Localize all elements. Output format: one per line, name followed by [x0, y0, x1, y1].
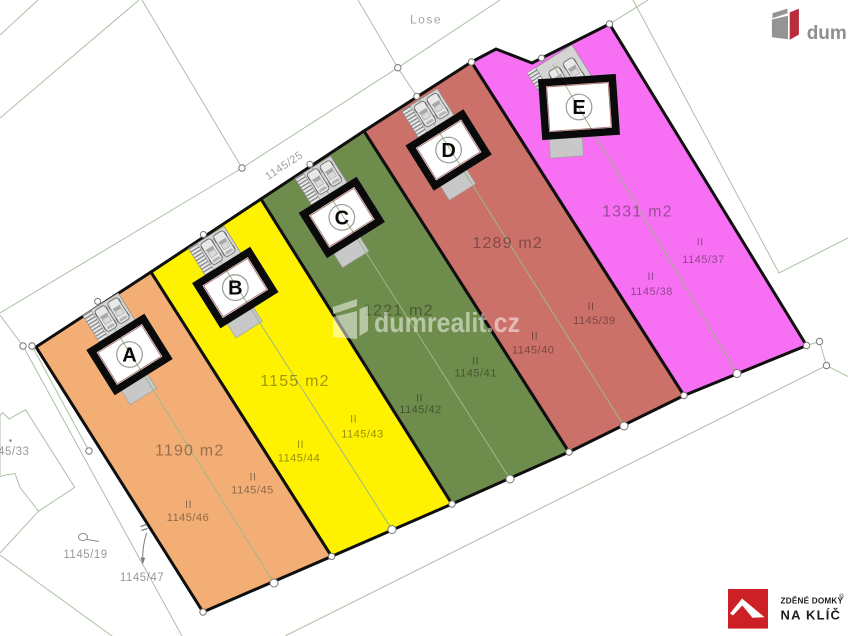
svg-text:1145/42: 1145/42	[399, 404, 441, 416]
svg-text:1155 m2: 1155 m2	[260, 373, 329, 390]
svg-text:II: II	[350, 414, 357, 426]
svg-text:II: II	[297, 439, 304, 451]
svg-text:1145/44: 1145/44	[278, 453, 320, 465]
svg-text:1145/40: 1145/40	[512, 345, 554, 357]
svg-text:1145/41: 1145/41	[454, 368, 496, 380]
svg-text:II: II	[249, 472, 256, 484]
svg-text:®: ®	[839, 593, 844, 601]
svg-text:II: II	[697, 237, 704, 249]
svg-text:II: II	[531, 331, 538, 343]
svg-text:E: E	[572, 97, 585, 119]
svg-text:1145/39: 1145/39	[573, 315, 615, 327]
svg-text:1289 m2: 1289 m2	[472, 235, 543, 252]
svg-text:II: II	[416, 393, 423, 405]
svg-text:B: B	[228, 278, 242, 300]
svg-text:1331 m2: 1331 m2	[602, 204, 673, 221]
svg-text:ZDĚNÉ DOMKY: ZDĚNÉ DOMKY	[781, 595, 844, 606]
svg-text:C: C	[335, 207, 349, 229]
svg-text:1145/19: 1145/19	[63, 549, 107, 561]
svg-text:1145/38: 1145/38	[630, 286, 672, 298]
svg-text:NA KLÍČ: NA KLÍČ	[781, 608, 842, 623]
svg-text:dumr: dumr	[807, 23, 848, 44]
svg-text:1145/37: 1145/37	[682, 254, 724, 266]
svg-text:II: II	[647, 271, 654, 283]
svg-text:1190 m2: 1190 m2	[155, 443, 224, 460]
svg-text:1145/33: 1145/33	[0, 446, 29, 458]
svg-text:D: D	[441, 140, 455, 162]
svg-text:II: II	[185, 499, 192, 511]
svg-text:1145/43: 1145/43	[341, 429, 383, 441]
svg-text:1145/46: 1145/46	[167, 512, 209, 524]
svg-text:A: A	[122, 345, 136, 367]
svg-text:1145/47: 1145/47	[120, 572, 164, 584]
svg-text:II: II	[587, 301, 594, 313]
svg-text:II: II	[472, 356, 479, 368]
svg-text:Lose: Lose	[410, 13, 442, 27]
svg-text:dumrealit.cz: dumrealit.cz	[374, 307, 520, 338]
svg-text:1145/45: 1145/45	[231, 485, 273, 497]
